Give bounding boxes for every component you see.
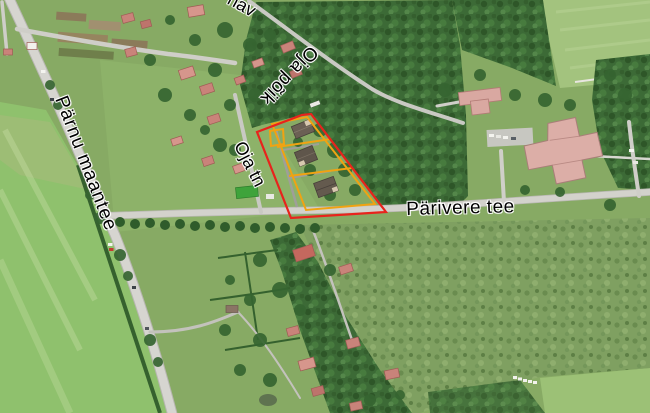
aerial-map[interactable]: nav Oja põik Oja tn Pärnu maantee Pärive…: [0, 0, 650, 413]
parking-lot: [487, 128, 534, 147]
map-canvas: [0, 0, 650, 413]
pond: [259, 394, 277, 406]
